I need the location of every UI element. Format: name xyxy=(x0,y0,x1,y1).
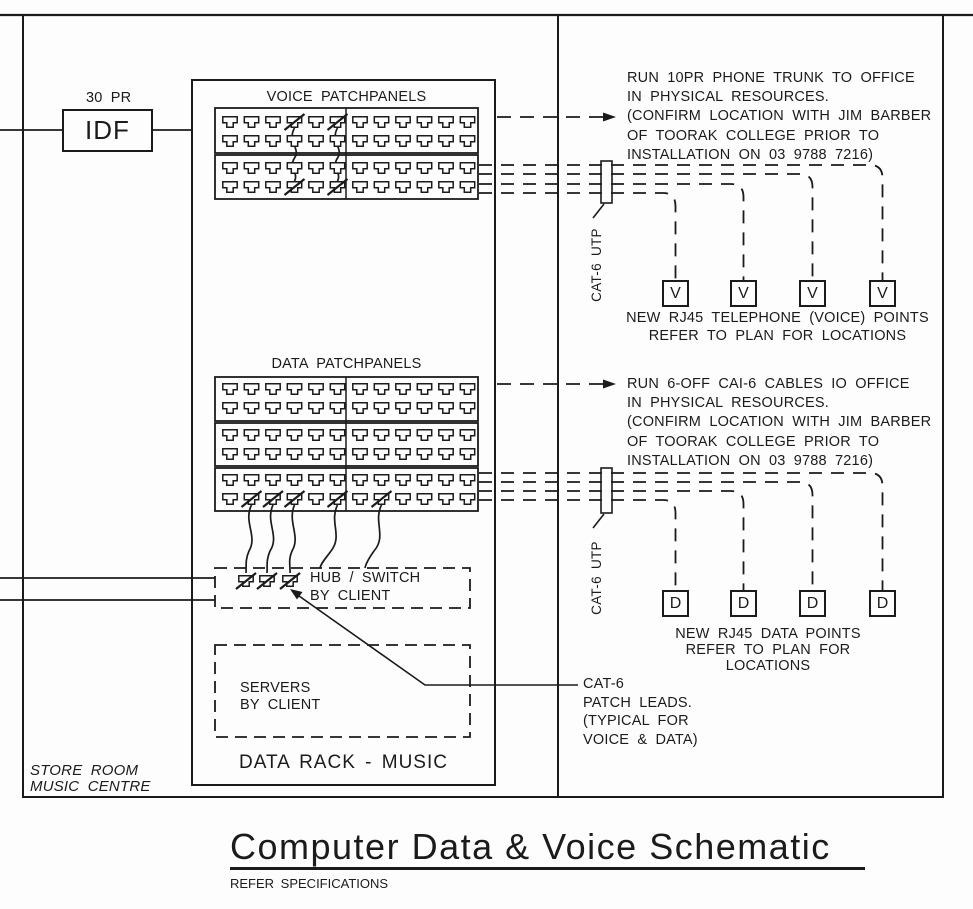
voice-note-line2: IN PHYSICAL RESOURCES. xyxy=(627,88,931,107)
rj45-jack-icon xyxy=(460,403,474,413)
rj45-jack-icon xyxy=(330,449,344,459)
voice-point-letter: V xyxy=(807,285,818,303)
rj45-jack-icon xyxy=(287,384,301,394)
rj45-jack-icon xyxy=(396,403,410,413)
rj45-jack-icon xyxy=(460,182,474,192)
rj45-jack-icon xyxy=(374,430,388,440)
rj45-jack-icon xyxy=(353,449,367,459)
hub-label-line2: BY CLIENT xyxy=(310,588,420,606)
rj45-jack-icon xyxy=(266,163,280,173)
data-point-box: D xyxy=(869,590,896,617)
rj45-jack-icon xyxy=(374,403,388,413)
rj45-jack-icon xyxy=(353,384,367,394)
rj45-jack-icon xyxy=(417,475,431,485)
sheet-title: Computer Data & Voice Schematic xyxy=(230,826,831,868)
rj45-jack-icon xyxy=(417,384,431,394)
data-note-line3: (CONFIRM LOCATION WITH JIM BARBER xyxy=(627,413,931,432)
rj45-jack-icon xyxy=(460,449,474,459)
rj45-jack-icon xyxy=(244,136,258,146)
rj45-jack-icon xyxy=(439,494,453,504)
patch-leads-callout-line xyxy=(292,591,578,685)
patch-panel-jacks xyxy=(223,117,475,586)
rj45-jack-icon xyxy=(374,449,388,459)
data-patch-cords xyxy=(246,505,382,573)
voice-panels-title: VOICE PATCHPANELS xyxy=(215,88,478,107)
rj45-jack-icon xyxy=(353,136,367,146)
rj45-jack-icon xyxy=(223,117,237,127)
rj45-jack-icon xyxy=(266,475,280,485)
rj45-jack-icon xyxy=(353,475,367,485)
patch-leads-note: CAT-6 PATCH LEADS. (TYPICAL FOR VOICE & … xyxy=(583,675,698,749)
rj45-jack-icon xyxy=(353,117,367,127)
voice-note-line5: INSTALLATION ON 03 9788 7216) xyxy=(627,146,931,165)
rj45-jack-icon xyxy=(396,449,410,459)
data-run-note: RUN 6-OFF CAI-6 CABLES IO OFFICE IN PHYS… xyxy=(627,375,931,471)
rj45-jack-icon xyxy=(460,136,474,146)
data-point-letter: D xyxy=(877,595,889,613)
rj45-jack-icon xyxy=(244,182,258,192)
room-label-line1: STORE ROOM xyxy=(30,763,151,779)
rj45-jack-icon xyxy=(244,403,258,413)
idf-cable-label: 30 PR xyxy=(86,89,131,108)
rj45-jack-icon xyxy=(396,136,410,146)
rj45-jack-icon xyxy=(309,182,323,192)
rj45-jack-icon xyxy=(223,136,237,146)
rj45-jack-icon xyxy=(439,449,453,459)
data-note-line1: RUN 6-OFF CAI-6 CABLES IO OFFICE xyxy=(627,375,931,394)
rj45-jack-icon xyxy=(244,475,258,485)
rj45-jack-icon xyxy=(417,182,431,192)
data-note-line5: INSTALLATION ON 03 9788 7216) xyxy=(627,452,931,471)
idf-label: IDF xyxy=(63,112,152,149)
schematic-sheet: 30 PR IDF VOICE PATCHPANELS DATA PATCHPA… xyxy=(0,0,973,909)
rj45-jack-icon xyxy=(460,163,474,173)
rj45-jack-icon xyxy=(396,494,410,504)
data-caption-line3: LOCATIONS xyxy=(640,658,896,674)
rj45-jack-icon xyxy=(244,117,258,127)
rj45-jack-icon xyxy=(439,475,453,485)
servers-label: SERVERS BY CLIENT xyxy=(240,680,320,714)
rj45-jack-icon xyxy=(353,430,367,440)
data-panels-title: DATA PATCHPANELS xyxy=(215,355,478,374)
data-note-line4: OF TOORAK COLLEGE PRIOR TO xyxy=(627,433,931,452)
data-point-letter: D xyxy=(670,595,682,613)
rj45-jack-icon xyxy=(396,117,410,127)
rj45-jack-icon xyxy=(330,384,344,394)
hub-label-line1: HUB / SWITCH xyxy=(310,570,420,588)
data-point-letter: D xyxy=(807,595,819,613)
hub-switch-label: HUB / SWITCH BY CLIENT xyxy=(310,570,420,605)
sheet-subtitle: REFER SPECIFICATIONS xyxy=(230,876,388,891)
rj45-jack-icon xyxy=(309,449,323,459)
data-utp-label: CAT-6 UTP xyxy=(589,533,605,623)
data-point-letter: D xyxy=(738,595,750,613)
data-distribution-cables xyxy=(479,473,883,590)
rj45-jack-icon xyxy=(460,430,474,440)
rj45-jack-icon xyxy=(287,136,301,146)
rj45-jack-icon xyxy=(460,117,474,127)
rj45-jack-icon xyxy=(244,163,258,173)
rj45-jack-icon xyxy=(330,475,344,485)
voice-points-caption: NEW RJ45 TELEPHONE (VOICE) POINTS REFER … xyxy=(625,310,930,345)
rj45-jack-icon xyxy=(330,430,344,440)
rj45-jack-icon xyxy=(223,384,237,394)
data-points-caption: NEW RJ45 DATA POINTS REFER TO PLAN FOR L… xyxy=(640,626,896,674)
rj45-jack-icon xyxy=(223,163,237,173)
rj45-jack-icon xyxy=(223,449,237,459)
patch-note-line4: VOICE & DATA) xyxy=(583,731,698,750)
rj45-jack-icon xyxy=(396,163,410,173)
rj45-jack-icon xyxy=(353,182,367,192)
rj45-jack-icon xyxy=(266,136,280,146)
rj45-jack-icon xyxy=(223,494,237,504)
data-caption-line1: NEW RJ45 DATA POINTS xyxy=(640,626,896,642)
servers-label-line2: BY CLIENT xyxy=(240,697,320,714)
data-utp-leader xyxy=(593,514,604,528)
rj45-jack-icon xyxy=(396,475,410,485)
rj45-jack-icon xyxy=(417,403,431,413)
rj45-jack-icon xyxy=(309,430,323,440)
rj45-jack-icon xyxy=(353,494,367,504)
rj45-jack-icon xyxy=(287,430,301,440)
rj45-jack-icon xyxy=(244,430,258,440)
rj45-jack-icon xyxy=(417,449,431,459)
rj45-jack-icon xyxy=(439,136,453,146)
patch-note-line2: PATCH LEADS. xyxy=(583,694,698,713)
voice-point-letter: V xyxy=(877,285,888,303)
servers-label-line1: SERVERS xyxy=(240,680,320,697)
patch-note-line3: (TYPICAL FOR xyxy=(583,712,698,731)
rj45-jack-icon xyxy=(330,163,344,173)
data-point-box: D xyxy=(730,590,757,617)
rj45-jack-icon xyxy=(266,182,280,192)
rj45-jack-icon xyxy=(266,430,280,440)
rj45-jack-icon xyxy=(244,449,258,459)
voice-note-line1: RUN 10PR PHONE TRUNK TO OFFICE xyxy=(627,69,931,88)
rj45-jack-icon xyxy=(374,384,388,394)
rj45-jack-icon xyxy=(309,384,323,394)
rj45-jack-icon xyxy=(287,475,301,485)
data-note-line2: IN PHYSICAL RESOURCES. xyxy=(627,394,931,413)
rj45-jack-icon xyxy=(460,384,474,394)
rj45-jack-icon xyxy=(374,163,388,173)
rj45-jack-icon xyxy=(266,403,280,413)
voice-point-box: V xyxy=(869,280,896,307)
voice-point-letter: V xyxy=(738,285,749,303)
rj45-jack-icon xyxy=(330,136,344,146)
rj45-jack-icon xyxy=(460,494,474,504)
voice-point-box: V xyxy=(730,280,757,307)
rj45-jack-icon xyxy=(266,117,280,127)
patch-note-line1: CAT-6 xyxy=(583,675,698,694)
rj45-jack-icon xyxy=(374,136,388,146)
rj45-jack-icon xyxy=(396,430,410,440)
rj45-jack-icon xyxy=(439,182,453,192)
data-point-box: D xyxy=(799,590,826,617)
rj45-jack-icon xyxy=(417,430,431,440)
rj45-jack-icon xyxy=(439,117,453,127)
rj45-jack-icon xyxy=(309,494,323,504)
voice-point-box: V xyxy=(799,280,826,307)
rj45-jack-icon xyxy=(287,449,301,459)
voice-trunk-arrowhead xyxy=(603,113,616,122)
rj45-jack-icon xyxy=(330,403,344,413)
rj45-jack-icon xyxy=(223,403,237,413)
rj45-jack-icon xyxy=(244,384,258,394)
rj45-jack-icon xyxy=(439,403,453,413)
rj45-jack-icon xyxy=(439,163,453,173)
rj45-jack-icon xyxy=(417,117,431,127)
data-caption-line2: REFER TO PLAN FOR xyxy=(640,642,896,658)
rack-title: DATA RACK - MUSIC xyxy=(192,752,495,774)
voice-note-line3: (CONFIRM LOCATION WITH JIM BARBER xyxy=(627,107,931,126)
rj45-jack-icon xyxy=(309,136,323,146)
data-trunk-arrowhead xyxy=(603,380,616,389)
rj45-jack-icon xyxy=(353,403,367,413)
rj45-jack-icon xyxy=(309,163,323,173)
rj45-jack-icon xyxy=(287,403,301,413)
voice-caption-line2: REFER TO PLAN FOR LOCATIONS xyxy=(625,328,930,346)
rj45-jack-icon xyxy=(460,475,474,485)
rj45-jack-icon xyxy=(287,163,301,173)
voice-point-box: V xyxy=(662,280,689,307)
rj45-jack-icon xyxy=(353,163,367,173)
rj45-jack-icon xyxy=(223,475,237,485)
voice-caption-line1: NEW RJ45 TELEPHONE (VOICE) POINTS xyxy=(625,310,930,328)
rj45-jack-icon xyxy=(417,136,431,146)
data-bundle-marker xyxy=(601,468,612,513)
data-point-box: D xyxy=(662,590,689,617)
rj45-jack-icon xyxy=(439,384,453,394)
rj45-jack-icon xyxy=(266,384,280,394)
rj45-jack-icon xyxy=(309,117,323,127)
voice-bundle-marker xyxy=(601,161,612,203)
voice-distribution-cables xyxy=(479,165,883,280)
voice-point-letter: V xyxy=(670,285,681,303)
rj45-jack-icon xyxy=(309,475,323,485)
rj45-jack-icon xyxy=(309,403,323,413)
voice-utp-label: CAT-6 UTP xyxy=(589,220,605,310)
voice-utp-leader xyxy=(593,204,604,218)
voice-note-line4: OF TOORAK COLLEGE PRIOR TO xyxy=(627,127,931,146)
room-label: STORE ROOM MUSIC CENTRE xyxy=(30,763,151,795)
rj45-jack-icon xyxy=(439,430,453,440)
room-label-line2: MUSIC CENTRE xyxy=(30,779,151,795)
rj45-jack-icon xyxy=(374,182,388,192)
rj45-jack-icon xyxy=(223,182,237,192)
rj45-jack-icon xyxy=(223,430,237,440)
rj45-jack-icon xyxy=(374,475,388,485)
rj45-jack-icon xyxy=(396,182,410,192)
rj45-jack-icon xyxy=(396,384,410,394)
rj45-jack-icon xyxy=(266,449,280,459)
rj45-jack-icon xyxy=(417,163,431,173)
rj45-jack-icon xyxy=(417,494,431,504)
rj45-jack-icon xyxy=(374,117,388,127)
voice-run-note: RUN 10PR PHONE TRUNK TO OFFICE IN PHYSIC… xyxy=(627,69,931,165)
